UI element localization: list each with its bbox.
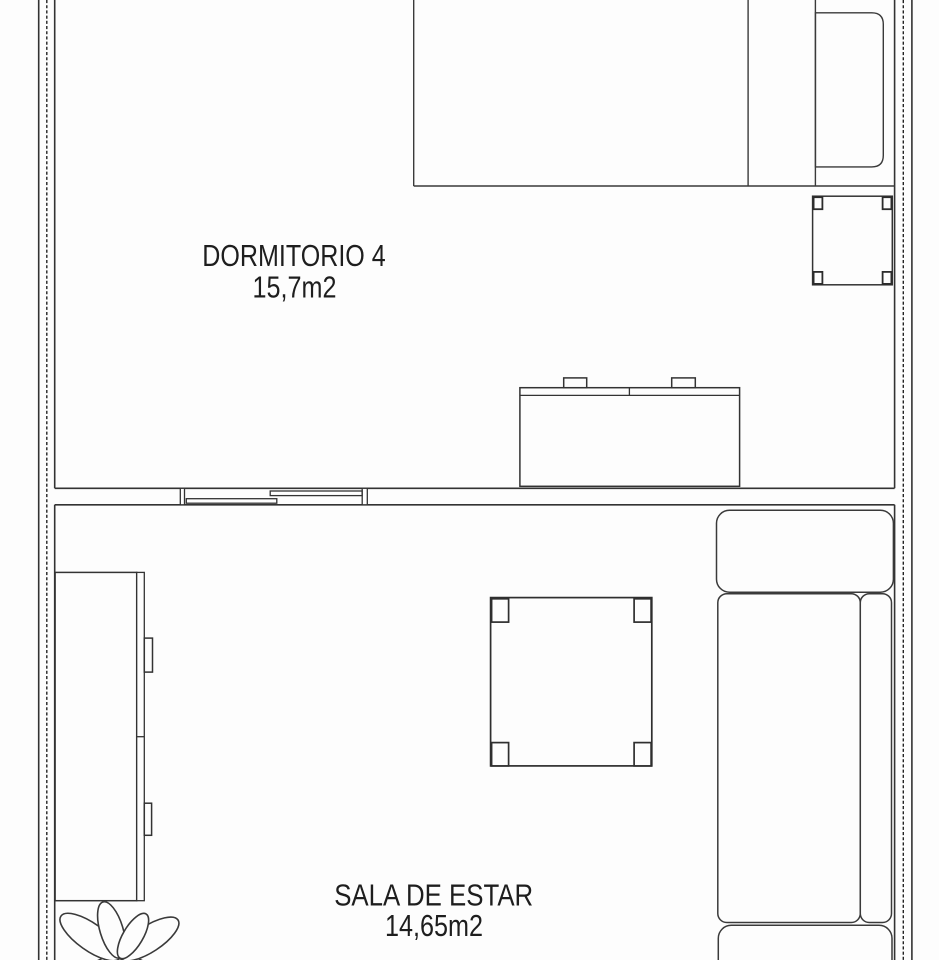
svg-text:15,7m2: 15,7m2 — [253, 272, 337, 305]
svg-text:DORMITORIO 4: DORMITORIO 4 — [202, 240, 385, 273]
svg-text:14,65m2: 14,65m2 — [385, 908, 483, 943]
